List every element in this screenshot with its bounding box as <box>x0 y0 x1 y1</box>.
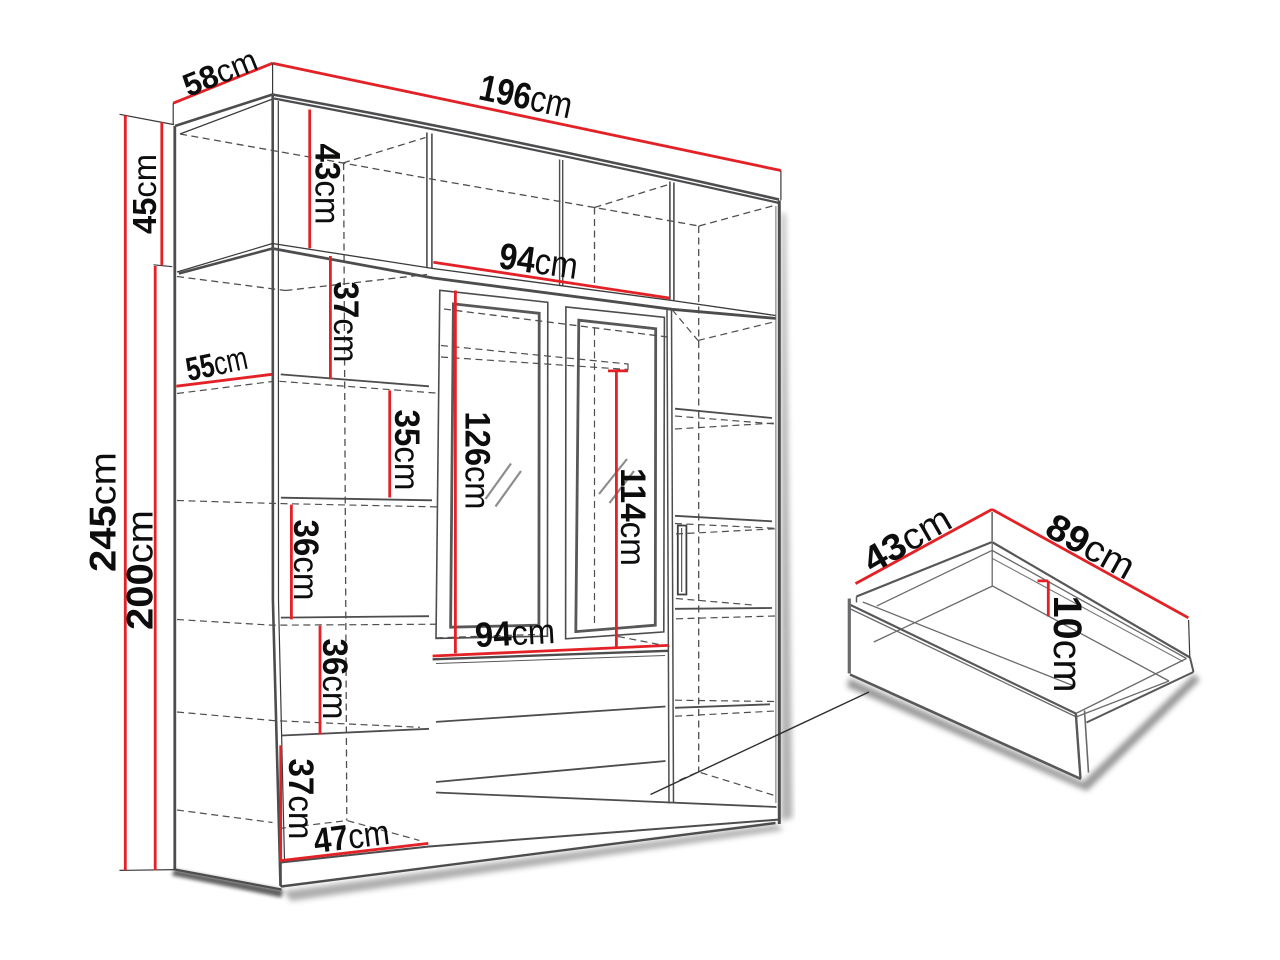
svg-text:43cm: 43cm <box>308 144 347 225</box>
svg-text:114cm: 114cm <box>613 468 652 566</box>
svg-text:200cm: 200cm <box>120 510 161 630</box>
svg-text:126cm: 126cm <box>458 412 497 510</box>
svg-text:10cm: 10cm <box>1045 596 1089 693</box>
svg-text:196cm: 196cm <box>476 67 576 127</box>
svg-text:245cm: 245cm <box>83 452 124 572</box>
svg-text:47cm: 47cm <box>311 813 391 861</box>
svg-text:94cm: 94cm <box>474 612 556 655</box>
svg-text:36cm: 36cm <box>286 520 325 601</box>
svg-text:58cm: 58cm <box>178 41 263 103</box>
svg-text:35cm: 35cm <box>387 410 426 491</box>
svg-text:36cm: 36cm <box>315 639 354 720</box>
svg-text:37cm: 37cm <box>326 282 365 363</box>
svg-text:55cm: 55cm <box>182 339 250 388</box>
svg-text:45cm: 45cm <box>126 154 163 234</box>
svg-text:89cm: 89cm <box>1039 505 1142 587</box>
